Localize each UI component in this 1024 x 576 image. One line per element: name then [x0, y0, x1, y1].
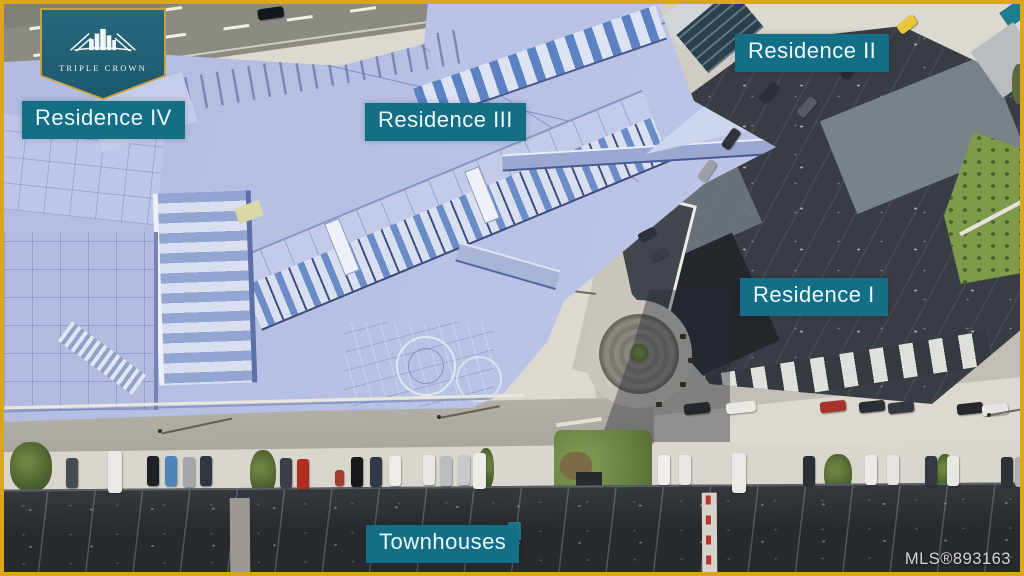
parked-car — [458, 455, 470, 485]
parked-car — [297, 459, 309, 489]
gold-photo-frame: Residence IV Residence III Residence II … — [0, 0, 1024, 576]
label-residence-2: Residence II — [735, 34, 889, 72]
city-skyline-crown-icon — [66, 22, 140, 58]
street-car — [887, 401, 914, 415]
mls-watermark: MLS®893163 — [905, 550, 1011, 569]
aerial-scene: Residence IV Residence III Residence II … — [4, 4, 1020, 572]
street-car — [819, 400, 846, 414]
plaza-bench — [688, 358, 694, 363]
parked-car — [280, 458, 292, 488]
plaza-bench — [656, 402, 662, 407]
render-walkway-ramp — [455, 242, 560, 290]
parked-car — [803, 456, 815, 486]
parked-car — [947, 456, 959, 486]
townhouse-walkway-gap — [230, 498, 251, 576]
label-residence-4: Residence IV — [22, 101, 185, 139]
parked-car — [183, 457, 195, 487]
red-bin — [335, 470, 344, 486]
parked-car — [423, 455, 435, 485]
parked-car — [165, 456, 177, 486]
parked-car — [865, 455, 877, 485]
parked-car — [679, 455, 691, 485]
street-car — [858, 400, 885, 414]
street-van — [726, 400, 757, 414]
parked-car — [370, 457, 382, 487]
parked-car — [1001, 457, 1013, 487]
bush — [10, 442, 52, 492]
parked-van — [732, 453, 746, 493]
parked-car — [925, 456, 937, 486]
label-townhouses: Townhouses — [366, 525, 519, 563]
parked-rv — [108, 451, 122, 493]
parked-car — [887, 455, 899, 485]
trees-top-right — [1012, 64, 1024, 104]
parked-car — [658, 455, 670, 485]
label-residence-1: Residence I — [740, 278, 888, 316]
logo-brand-text: TRIPLE CROWN — [42, 63, 164, 73]
parked-car — [351, 457, 363, 487]
label-residence-3: Residence III — [365, 103, 526, 141]
parked-car — [1015, 457, 1024, 487]
plaza-bench — [680, 334, 686, 339]
parked-car — [66, 458, 78, 488]
street-car — [956, 402, 983, 416]
parked-car — [440, 456, 452, 486]
parked-van — [473, 453, 486, 489]
townhouse-gap-red-trim — [702, 493, 718, 576]
car-on-highway — [257, 6, 284, 21]
render-plaza-circle — [408, 348, 444, 384]
parked-car — [389, 456, 401, 486]
parked-car — [200, 456, 212, 486]
plaza-bench — [680, 382, 686, 387]
parked-car — [147, 456, 159, 486]
